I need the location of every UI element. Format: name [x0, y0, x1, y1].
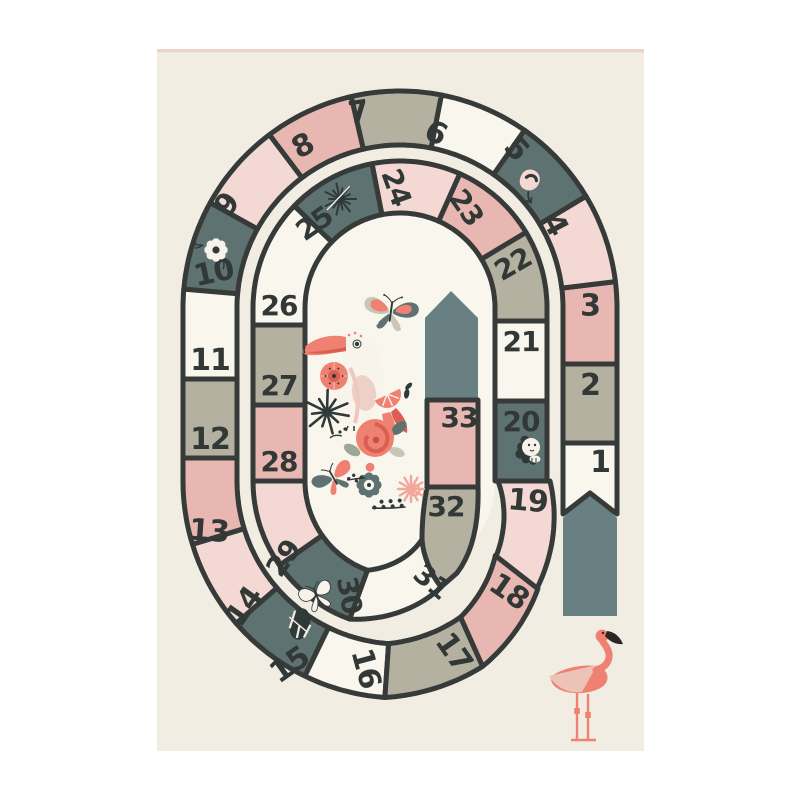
cell-number-27: 27 — [261, 369, 298, 402]
cell-number-20: 20 — [503, 405, 540, 438]
svg-text:26: 26 — [261, 289, 298, 322]
svg-text:1: 1 — [590, 445, 610, 480]
cell-number-26: 26 — [261, 289, 298, 322]
cell-number-11: 11 — [190, 343, 230, 378]
cell-number-32: 32 — [428, 490, 465, 523]
poppy-flower-icon — [320, 362, 348, 390]
svg-text:21: 21 — [503, 325, 540, 358]
svg-text:32: 32 — [428, 490, 465, 523]
cell-number-2: 2 — [580, 368, 600, 403]
svg-text:12: 12 — [190, 422, 230, 457]
svg-text:13: 13 — [188, 512, 230, 550]
svg-text:28: 28 — [261, 445, 298, 478]
cell-number-1: 1 — [590, 445, 610, 480]
svg-text:27: 27 — [261, 369, 298, 402]
product-photo: 1 2 3 4 5 6 7 8 9 10 11 12 13 14 15 16 1… — [0, 0, 800, 800]
cell-number-19: 19 — [506, 482, 549, 520]
cell-number-3: 3 — [580, 289, 600, 324]
cell-number-30: 30 — [330, 574, 369, 617]
svg-text:30: 30 — [330, 574, 369, 617]
svg-text:2: 2 — [580, 368, 600, 403]
svg-text:11: 11 — [190, 343, 230, 378]
play-rug-board-game: 1 2 3 4 5 6 7 8 9 10 11 12 13 14 15 16 1… — [0, 0, 800, 800]
cell-number-33: 33 — [441, 401, 478, 434]
cell-number-13: 13 — [188, 512, 230, 550]
svg-text:19: 19 — [506, 482, 549, 520]
svg-text:33: 33 — [441, 401, 478, 434]
svg-text:20: 20 — [503, 405, 540, 438]
teal-flower-icon — [356, 472, 381, 497]
cell-number-21: 21 — [503, 325, 540, 358]
rug-top-edge — [157, 49, 644, 53]
svg-text:3: 3 — [580, 289, 600, 324]
cell-number-12: 12 — [190, 422, 230, 457]
cell-number-28: 28 — [261, 445, 298, 478]
